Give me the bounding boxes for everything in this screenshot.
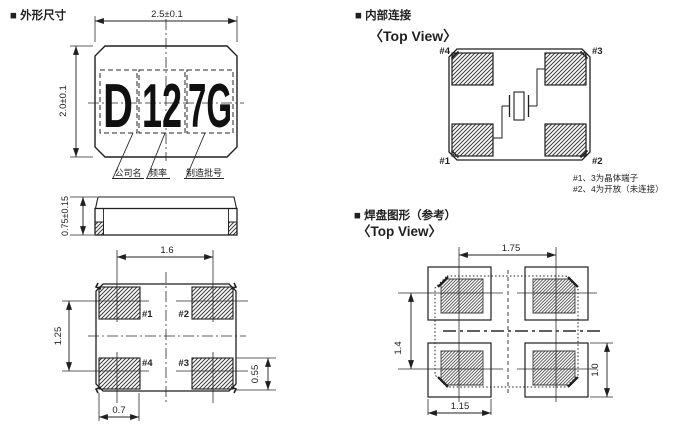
internal-note-1: #1、3为晶体端子: [573, 173, 639, 183]
dimension-height: 2.0±0.1: [58, 46, 93, 157]
outline-side-view: 0.75±0.15: [60, 196, 237, 236]
dimension-pad-height: 0.55: [250, 358, 268, 390]
internal-pad-3: [545, 53, 586, 85]
bottom-pad-1-label: #1: [142, 309, 153, 320]
internal-top-view-label: 〈Top View〉: [369, 28, 457, 44]
internal-pad-3-label: #3: [592, 46, 603, 57]
device-pad-top-right: [533, 279, 575, 313]
label-lot-number: 制造批号: [186, 167, 222, 178]
dimension-pad-pitch-y: 1.25: [53, 301, 69, 371]
dim-width-label: 2.5±0.1: [151, 9, 183, 20]
construction-lines: [62, 250, 276, 421]
dimension-thickness: 0.75±0.15: [60, 196, 97, 236]
package-body-side-view: [95, 209, 237, 236]
wire-to-pad-1: [493, 106, 502, 138]
internal-connection-section: ■ 内部连接 〈Top View〉 #4 #3 #1 #2 #1、3为晶体端子 …: [355, 8, 664, 194]
datasheet-page: ■ 外形尺寸 D 12 7G 2.5±0.1: [0, 0, 675, 429]
dim-thickness-label: 0.75±0.15: [60, 196, 70, 236]
land-top-view-label: 〈Top View〉: [357, 224, 442, 239]
marking-frequency-code: 12: [142, 72, 182, 141]
dimension-land-pitch-y: 1.4: [393, 293, 411, 369]
terminal-right-side-view: [229, 222, 238, 235]
internal-pad-4-label: #4: [439, 46, 450, 57]
label-company-name: 公司名: [114, 167, 141, 178]
internal-note-2: #2、4为开放（未连接）: [573, 184, 664, 194]
internal-section-title: ■ 内部连接: [355, 8, 412, 22]
bottom-pad-3-label: #3: [178, 358, 189, 369]
marking-lot-code: 7G: [188, 72, 232, 141]
internal-pad-4: [452, 53, 493, 85]
dim-height-label: 2.0±0.1: [58, 85, 69, 117]
bottom-pad-4: [99, 358, 140, 389]
dim-pad-height-label: 0.55: [250, 365, 261, 384]
dimension-land-height: 1.0: [590, 343, 607, 397]
wire-to-pad-3: [537, 69, 545, 106]
internal-pad-1-label: #1: [439, 156, 450, 167]
bottom-pad-2: [192, 287, 233, 319]
outline-bottom-view: #1 #2 #4 #3: [53, 245, 276, 421]
dim-pad-pitch-y-label: 1.25: [53, 327, 64, 346]
land-pattern-section: ■ 焊盘图形（参考） 〈Top View〉: [354, 208, 613, 415]
land-section-title: ■ 焊盘图形（参考）: [354, 208, 456, 222]
outline-section: ■ 外形尺寸 D 12 7G 2.5±0.1: [10, 8, 276, 421]
dimension-land-width: 1.15: [428, 401, 491, 413]
outline-top-view: D 12 7G 2.5±0.1 2.0±0.1: [58, 9, 244, 179]
bottom-pad-2-label: #2: [178, 309, 189, 320]
dim-land-pitch-x-label: 1.75: [502, 243, 521, 254]
technical-drawing-canvas: ■ 外形尺寸 D 12 7G 2.5±0.1: [0, 0, 675, 429]
terminal-left-side-view: [95, 222, 104, 235]
bottom-pad-1: [99, 287, 140, 319]
dim-land-width-label: 1.15: [451, 401, 470, 412]
outline-section-title: ■ 外形尺寸: [10, 8, 67, 22]
bottom-pad-3: [192, 358, 233, 389]
device-pad-bottom-right: [533, 351, 575, 385]
dimension-pad-pitch-x: 1.6: [117, 245, 213, 257]
dim-land-height-label: 1.0: [590, 363, 601, 376]
package-lid-side-view: [96, 197, 237, 209]
internal-pad-2: [545, 124, 586, 156]
dim-pad-pitch-x-label: 1.6: [160, 245, 173, 256]
dimension-pad-width: 0.7: [99, 405, 139, 417]
marking-company-code: D: [103, 72, 133, 141]
label-frequency: 频率: [149, 167, 167, 178]
device-pad-bottom-left: [441, 351, 483, 385]
internal-pad-1: [452, 124, 493, 156]
bottom-pad-4-label: #4: [142, 358, 153, 369]
internal-pad-2-label: #2: [592, 156, 603, 167]
dim-pad-width-label: 0.7: [112, 405, 125, 416]
crystal-symbol: [493, 69, 545, 138]
dimension-land-pitch-x: 1.75: [459, 243, 556, 255]
device-pad-top-left: [441, 279, 483, 313]
dim-land-pitch-y-label: 1.4: [393, 341, 404, 354]
